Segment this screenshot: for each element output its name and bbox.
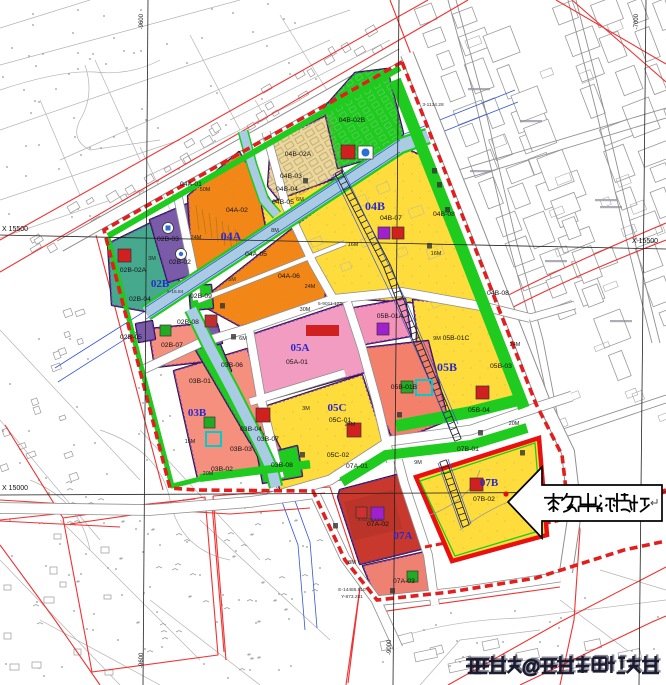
svg-text:03B-08: 03B-08 [271,462,293,469]
svg-text:04B-04: 04B-04 [276,186,298,193]
svg-text:05C: 05C [328,402,347,414]
svg-text:24M: 24M [305,284,316,290]
svg-text:03B-01: 03B-01 [189,378,211,385]
svg-text:07A: 07A [394,530,413,542]
svg-text:04B: 04B [365,199,385,213]
svg-text:3-1134.28: 3-1134.28 [422,102,444,108]
svg-text:04B-07: 04B-07 [380,215,402,222]
svg-text:8M: 8M [348,560,356,566]
svg-text:05C-02: 05C-02 [327,452,350,459]
svg-text:05A: 05A [291,342,310,354]
svg-text:04A-06: 04A-06 [278,273,300,280]
svg-text:X-15.84: X-15.84 [167,289,184,295]
svg-text:02B-07: 02B-07 [161,342,183,349]
svg-text:X 15000: X 15000 [2,485,28,492]
svg-text:16M: 16M [431,251,442,257]
svg-text:05B-03: 05B-03 [490,363,512,370]
svg-text:04A: 04A [221,229,242,243]
svg-text:9M: 9M [414,460,422,466]
svg-text:5M: 5M [228,277,236,283]
svg-text:50M: 50M [200,187,211,193]
svg-text:30M: 30M [300,307,311,313]
svg-text:6M: 6M [239,336,247,342]
svg-text:9M: 9M [433,336,441,342]
svg-text:20M: 20M [509,421,520,427]
svg-text:X-0375.121: X-0375.121 [358,517,383,523]
svg-text:07A-01: 07A-01 [346,463,368,470]
svg-text:Y-873.281: Y-873.281 [341,594,363,600]
svg-text:02B-04: 02B-04 [129,296,151,303]
svg-text:-9600: -9600 [139,13,145,29]
svg-text:02B-02: 02B-02 [169,259,191,266]
svg-text:03B-06: 03B-06 [221,362,243,369]
svg-text:04A-05: 04A-05 [245,251,267,258]
svg-text:05B-01A: 05B-01A [377,313,404,320]
svg-text:X 15500: X 15500 [2,226,28,233]
svg-text:03B-04: 03B-04 [240,426,262,433]
svg-text:07B: 07B [480,477,499,489]
svg-text:5-9011.123: 5-9011.123 [318,301,342,307]
svg-text:02B-02A: 02B-02A [120,267,147,274]
svg-text:-9600: -9600 [139,652,145,668]
svg-text:03B-07: 03B-07 [257,436,279,443]
svg-text:02B: 02B [151,278,170,290]
svg-text:@: @ [522,657,541,678]
svg-text:24M: 24M [345,422,356,428]
svg-text:03B: 03B [188,407,207,419]
svg-text:6M: 6M [296,197,304,203]
svg-text:03B-03: 03B-03 [230,446,252,453]
svg-text:02B-09: 02B-09 [190,293,212,300]
svg-text:24M: 24M [510,342,521,348]
svg-text:E-14485.810: E-14485.810 [338,587,366,593]
svg-text:-9000: -9000 [387,639,393,655]
svg-text:-7000: -7000 [634,13,640,29]
svg-text:05B: 05B [437,360,457,374]
svg-text:8M: 8M [271,228,279,234]
svg-text:07B-02: 07B-02 [473,496,495,503]
svg-text:16M: 16M [348,242,359,248]
svg-text:3M: 3M [148,256,156,262]
svg-text:04B-08: 04B-08 [487,290,509,297]
svg-text:24M: 24M [191,235,202,241]
svg-text:02B-08: 02B-08 [177,319,199,326]
svg-text:X 15500: X 15500 [632,238,658,245]
svg-text:02B-05: 02B-05 [120,334,142,341]
svg-text:07B-01: 07B-01 [457,446,479,453]
svg-text:03B-02: 03B-02 [211,466,233,473]
svg-text:04B-08: 04B-08 [433,211,455,218]
svg-text:07A-03: 07A-03 [393,578,415,585]
svg-text:05A-01: 05A-01 [286,359,308,366]
svg-text:20M: 20M [203,471,214,477]
svg-text:05B-01B: 05B-01B [391,384,418,391]
svg-text:3M: 3M [302,406,310,412]
svg-text:04B-02A: 04B-02A [285,151,312,158]
svg-text:02B-03: 02B-03 [157,236,179,243]
svg-text:04A-02: 04A-02 [226,207,248,214]
svg-text:05B-04: 05B-04 [468,407,490,414]
svg-text:04B-03: 04B-03 [280,173,302,180]
svg-text:04B-02B: 04B-02B [339,117,366,124]
svg-text:04B-05: 04B-05 [272,199,294,206]
svg-text:15M: 15M [185,439,196,445]
svg-text:05B-01C: 05B-01C [443,335,470,342]
